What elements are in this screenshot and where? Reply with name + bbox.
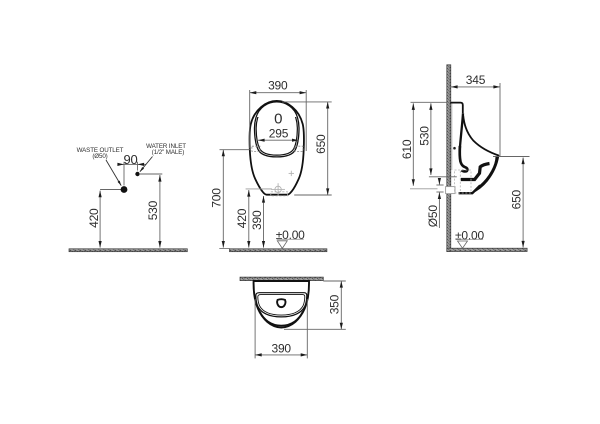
svg-text:420: 420 [87,208,101,228]
svg-text:90: 90 [123,152,137,167]
svg-text:Ø50: Ø50 [426,205,440,228]
svg-text:530: 530 [417,126,431,146]
svg-text:±0.00: ±0.00 [276,228,305,242]
svg-text:390: 390 [268,79,288,93]
svg-text:650: 650 [510,189,524,209]
svg-text:295: 295 [269,126,289,140]
svg-text:530: 530 [146,200,160,220]
svg-text:(Ø50): (Ø50) [92,153,107,160]
svg-text:0: 0 [274,111,282,128]
svg-text:390: 390 [250,210,264,230]
svg-text:700: 700 [210,188,224,208]
svg-text:390: 390 [271,342,291,356]
svg-text:±0.00: ±0.00 [455,228,484,242]
svg-text:345: 345 [466,73,486,87]
svg-text:420: 420 [235,208,249,228]
svg-text:(1/2" MALE): (1/2" MALE) [152,149,184,156]
svg-text:610: 610 [400,139,414,159]
svg-text:350: 350 [328,294,342,314]
svg-text:650: 650 [314,134,328,154]
